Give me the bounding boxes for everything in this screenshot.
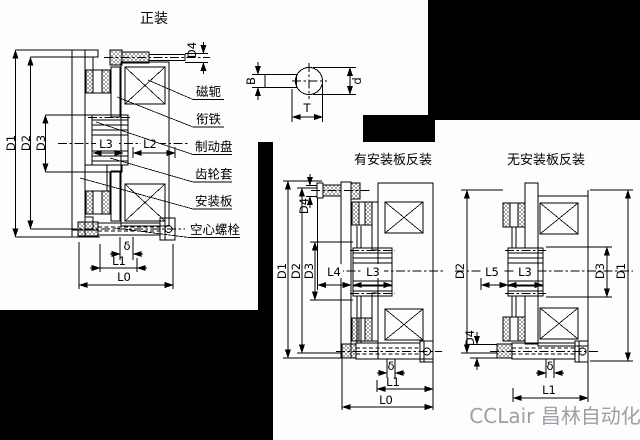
dim-label-l1: L1 bbox=[112, 254, 126, 268]
dim-label-l0: L0 bbox=[117, 270, 131, 284]
dim-label-d2: D2 bbox=[289, 263, 303, 279]
dim-label-l1: L1 bbox=[542, 383, 556, 397]
dim-label-l1: L1 bbox=[386, 375, 400, 389]
callout-brake-disc: 制动盘 bbox=[195, 139, 233, 154]
dim-label-d4: D4 bbox=[297, 198, 311, 214]
dim-label-l3: L3 bbox=[518, 265, 532, 279]
dim-label-l5: L5 bbox=[485, 265, 499, 279]
dim-label-l0: L0 bbox=[379, 393, 393, 407]
callout-hollow-bolt: 空心螺栓 bbox=[190, 222, 241, 237]
front-view-title: 正装 bbox=[140, 11, 168, 27]
reverse-with-plate-title: 有安装板反装 bbox=[354, 153, 432, 168]
drawing-sheet: 正装 bbox=[0, 0, 640, 440]
dim-label-d3: D3 bbox=[593, 263, 607, 279]
dim-label-delta: δ bbox=[387, 359, 394, 373]
callout-armature: 衔铁 bbox=[196, 112, 222, 127]
dim-label-d1: D1 bbox=[275, 263, 289, 279]
dim-label-delta: δ bbox=[123, 239, 130, 253]
dim-label-l3: L3 bbox=[99, 137, 113, 151]
dim-label-delta: δ bbox=[546, 359, 553, 373]
dim-label-d2: D2 bbox=[453, 263, 467, 279]
dim-label-t: T bbox=[302, 101, 311, 115]
callout-yoke: 磁轭 bbox=[196, 84, 221, 99]
dim-label-d3: D3 bbox=[302, 263, 316, 279]
dim-label-d1: D1 bbox=[614, 263, 628, 279]
dim-label-l3: L3 bbox=[366, 265, 380, 279]
dim-label-d1: D1 bbox=[4, 135, 18, 151]
dim-label-d4: D4 bbox=[185, 42, 199, 58]
dim-label-b: B bbox=[244, 77, 258, 85]
dim-label-d: d bbox=[350, 77, 364, 84]
watermark-text: CCLair 昌林自动化 bbox=[469, 404, 640, 428]
dim-label-l4: L4 bbox=[327, 265, 341, 279]
dim-label-d3: D3 bbox=[34, 135, 48, 151]
callout-mounting-plate: 安装板 bbox=[195, 194, 233, 209]
dim-label-d2: D2 bbox=[19, 135, 33, 151]
callout-gear-sleeve: 齿轮套 bbox=[195, 167, 233, 182]
dim-label-d4: D4 bbox=[463, 330, 477, 346]
reverse-without-plate-title: 无安装板反装 bbox=[507, 153, 585, 168]
brake-assembly-drawing: 正装 bbox=[0, 0, 640, 440]
dim-label-l2: L2 bbox=[143, 137, 157, 151]
